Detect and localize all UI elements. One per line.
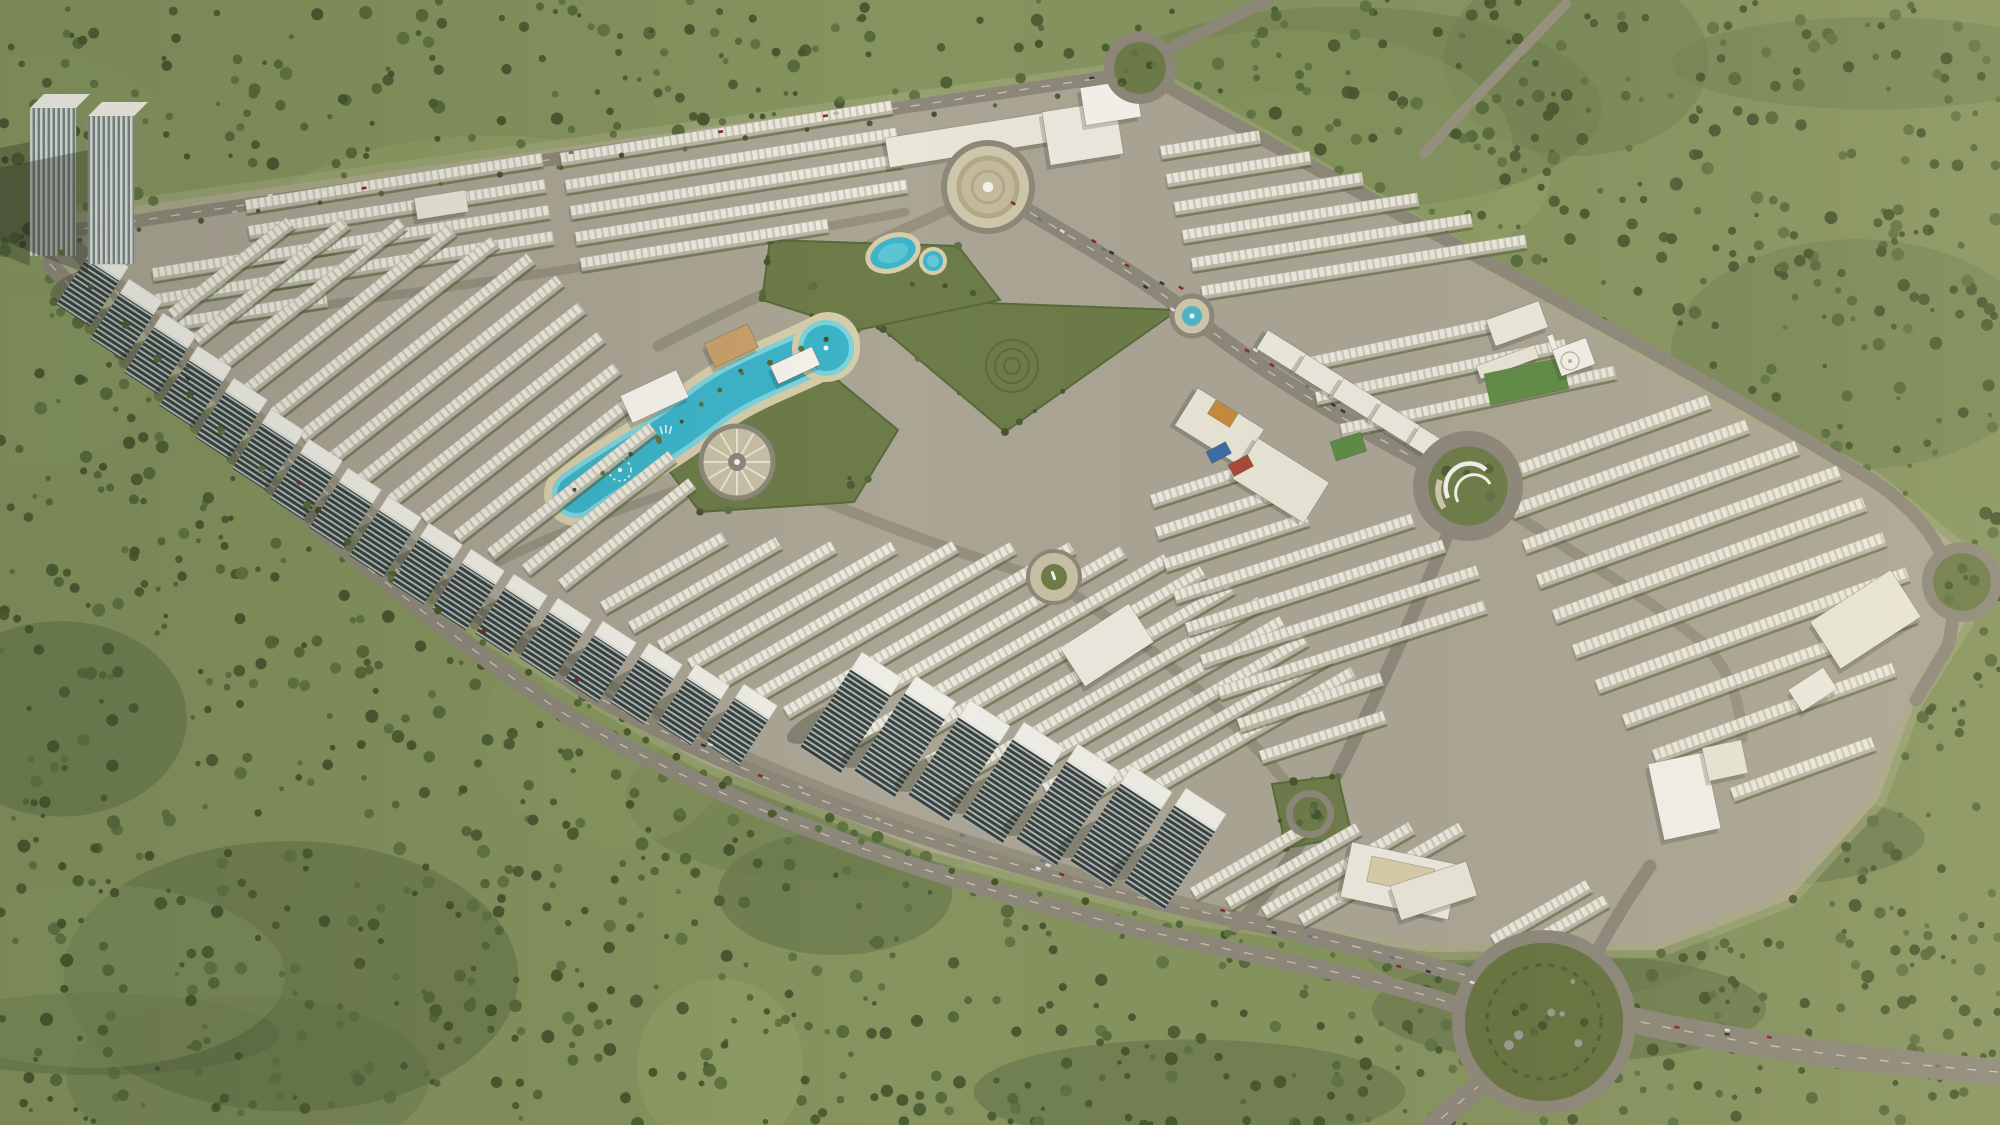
light-overlay bbox=[0, 0, 2000, 1125]
scene-canvas bbox=[0, 0, 2000, 1125]
aerial-masterplan-render bbox=[0, 0, 2000, 1125]
